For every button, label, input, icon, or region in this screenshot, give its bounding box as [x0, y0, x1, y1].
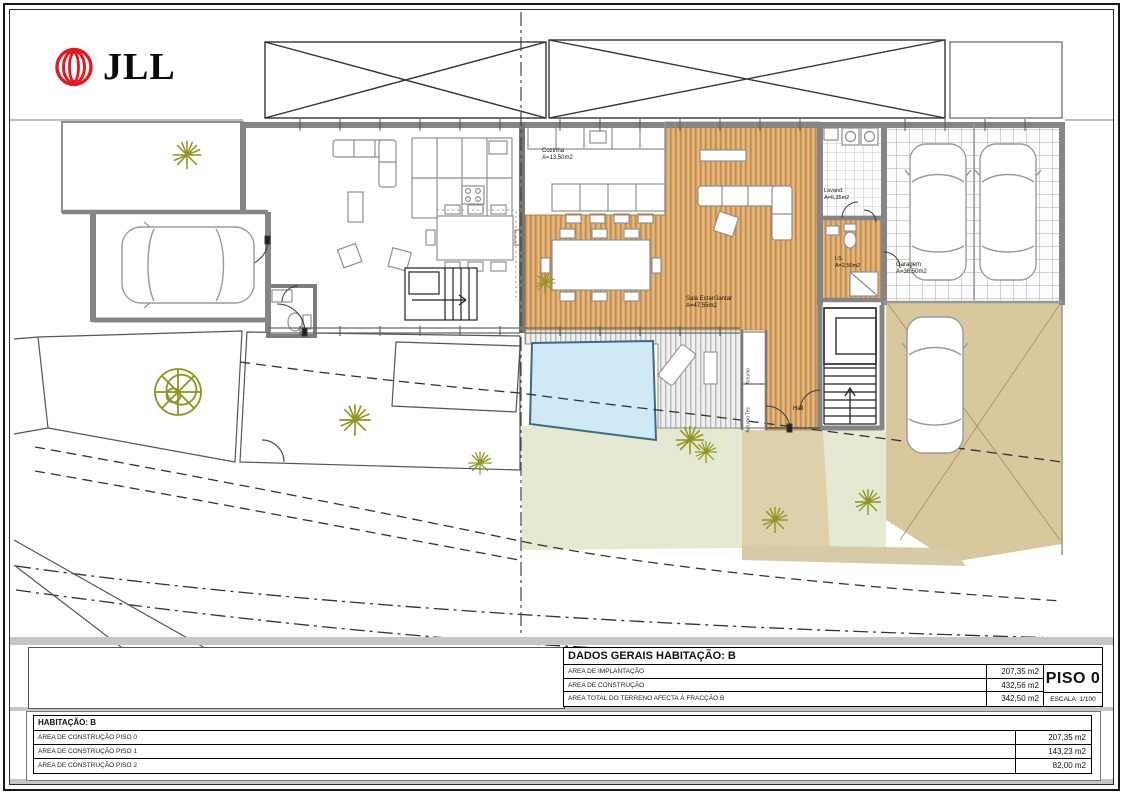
neighbour-plots	[14, 331, 520, 470]
roof-outlines	[265, 40, 1062, 118]
sheet-band-top	[10, 637, 1113, 645]
jll-globe-icon	[52, 44, 96, 90]
car-garage-a	[122, 222, 254, 308]
logo-text: JLL	[103, 48, 176, 86]
row-construcao-label: AREA DE CONSTRUÇÃO	[564, 679, 986, 693]
room-label-arrumo-tec: Arrumo Tec.	[746, 406, 753, 433]
room-label-lavandaria: Lavand. A=6,35m2	[824, 188, 849, 201]
swimming-pool	[530, 341, 656, 440]
row-implantacao-label: AREA DE IMPLANTAÇÃO	[564, 665, 986, 679]
resumo-piso1-label: AREA DE CONSTRUÇÃO PISO 1	[34, 745, 1015, 759]
jll-logo: JLL	[52, 44, 176, 90]
room-label-garagem: Garagem A=36,50m2	[896, 262, 927, 275]
room-label-hall: Hall	[793, 406, 803, 413]
resumo-piso0-label: AREA DE CONSTRUÇÃO PISO 0	[34, 731, 1015, 745]
title-block-empty-panel	[28, 647, 565, 709]
row-terreno-value: 342,50 m2	[986, 692, 1043, 706]
dados-gerais-title: DADOS GERAIS HABITAÇÃO: B	[564, 648, 1102, 665]
room-label-is: I.S. A=2,50m2	[835, 256, 860, 269]
drawing-sheet: JLL Cozinha A=13,50m2 Sala Estar/Jantar …	[0, 0, 1123, 794]
row-construcao-value: 432,56 m2	[986, 679, 1043, 693]
row-terreno-label: AREA TOTAL DO TERRENO AFECTA À FRACÇÃO B	[564, 692, 986, 706]
room-label-sala: Sala Estar/Jantar A=47,55m2	[686, 296, 732, 309]
resumo-piso2-label: AREA DE CONSTRUÇÃO PISO 2	[34, 759, 1015, 773]
resumo-piso1-value: 143,23 m2	[1015, 745, 1091, 759]
resumo-title: HABITAÇÃO: B	[34, 716, 1091, 731]
piso-label: PISO 0	[1043, 665, 1102, 692]
row-implantacao-value: 207,35 m2	[986, 665, 1043, 679]
scale-note: ESCALA: 1/100	[1043, 692, 1102, 706]
resumo-table: HABITAÇÃO: B AREA DE CONSTRUÇÃO PISO 0 2…	[33, 715, 1092, 774]
resumo-piso0-value: 207,35 m2	[1015, 731, 1091, 745]
resumo-piso2-value: 82,00 m2	[1015, 759, 1091, 773]
room-label-arrumo: Arrumo	[746, 368, 753, 384]
dados-gerais-table: DADOS GERAIS HABITAÇÃO: B AREA DE IMPLAN…	[563, 647, 1103, 707]
room-label-cozinha: Cozinha A=13,50m2	[542, 148, 573, 161]
stairs-a	[405, 268, 477, 320]
